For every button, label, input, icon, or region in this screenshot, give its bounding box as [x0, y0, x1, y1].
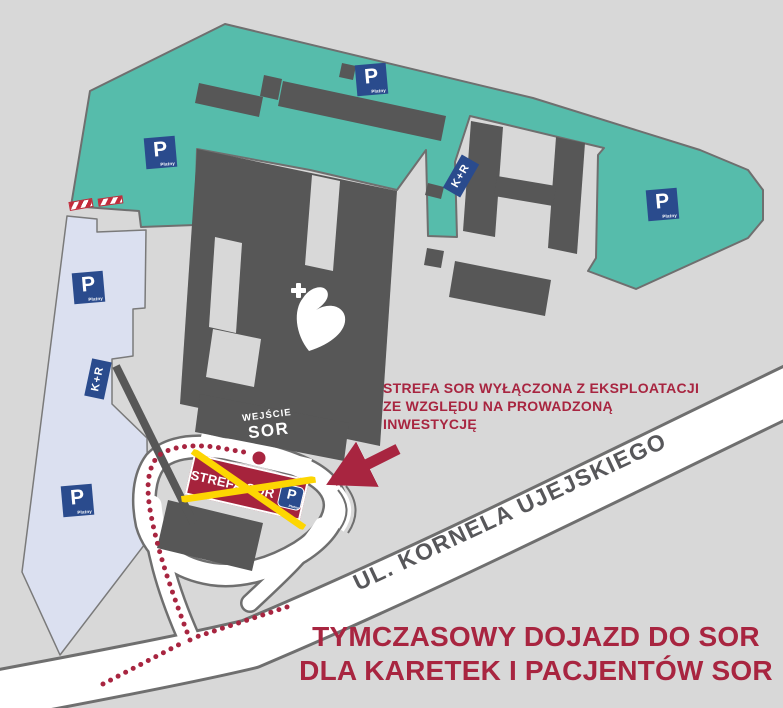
annotation-line2: ZE WZGLĘDU NA PROWADZONĄ [383, 397, 699, 415]
mini-parking-sign-icon: P Płatny [277, 483, 306, 512]
parking-sign-icon: P Płatny [355, 63, 389, 97]
parking-sign-icon: P Płatny [61, 484, 95, 518]
parking-p: P [355, 63, 388, 91]
hospital-site-map: UL. KORNELA UJEJSKIEGO P Płatny P Płatny… [0, 0, 783, 708]
sor-destination-dot [253, 452, 266, 465]
annotation-line1: STREFA SOR WYŁĄCZONA Z EKSPLOATACJI [383, 379, 699, 397]
parking-paid-label: Płatny [88, 296, 103, 302]
closed-zone-annotation: STREFA SOR WYŁĄCZONA Z EKSPLOATACJI ZE W… [383, 379, 699, 433]
parking-sign-icon: P Płatny [646, 188, 680, 222]
parking-p: P [144, 136, 177, 164]
map-title: TYMCZASOWY DOJAZD DO SOR DLA KARETEK I P… [297, 620, 775, 688]
parking-paid-label: Płatny [371, 88, 386, 94]
parking-sign-icon: P Płatny [144, 136, 178, 170]
map-canvas: UL. KORNELA UJEJSKIEGO [0, 0, 783, 708]
kr-label: K+R [89, 365, 106, 392]
parking-paid-label: Płatny [662, 213, 677, 219]
hospital-logo [283, 276, 353, 360]
closed-zone-label: STREFA SOR [189, 467, 276, 501]
title-line1: TYMCZASOWY DOJAZD DO SOR [297, 620, 775, 654]
parking-paid-label: Płatny [160, 161, 175, 167]
parking-p: P [72, 271, 105, 299]
parking-p: P [61, 484, 94, 512]
heart-b-glyph [297, 287, 345, 351]
title-line2: DLA KARETEK I PACJENTÓW SOR [297, 654, 775, 688]
annotation-line3: INWESTYCJĘ [383, 415, 699, 433]
parking-p: P [646, 188, 679, 216]
parking-sign-icon: P Płatny [72, 271, 106, 305]
parking-paid-label: Płatny [77, 509, 92, 515]
mini-parking-p: P [279, 483, 304, 505]
